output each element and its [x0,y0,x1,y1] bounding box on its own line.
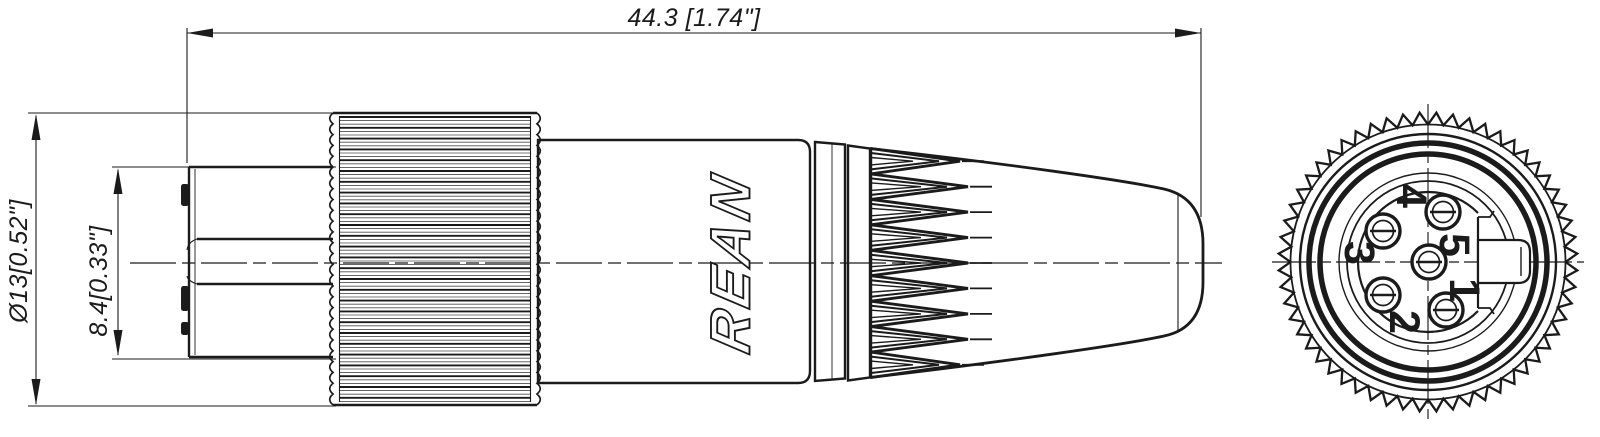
knurled-ring [330,113,541,405]
arrow-up-icon [32,114,41,140]
latch-tab [181,322,189,335]
front-shank [181,167,333,357]
drawing-canvas: 44.3 [1.74"] Ø13[0.52"] 8.4[0.33"] [0,0,1600,437]
keyway-groove [197,239,333,284]
brand-logo: REAN [700,165,762,358]
arrow-up-icon [114,168,123,194]
pin-label-1: 1 [1440,278,1488,302]
side-view: 44.3 [1.74"] Ø13[0.52"] 8.4[0.33"] [5,4,1222,406]
connector-technical-drawing: 44.3 [1.74"] Ø13[0.52"] 8.4[0.33"] [0,0,1600,437]
latch-tab [181,286,189,311]
pin-label-4: 4 [1387,184,1435,208]
latch-tab [181,184,189,206]
pin-label-2: 2 [1380,310,1428,334]
arrow-down-icon [32,379,41,405]
dim-body-diameter: Ø13[0.52"] [5,113,336,406]
end-view: 4 3 5 2 1 [1272,104,1584,421]
pin-label-3: 3 [1335,241,1383,265]
arrow-left-icon [187,29,213,38]
keyway-tab [1478,240,1530,283]
collar-rings [815,142,870,381]
dim-body-diameter-text: Ø13[0.52"] [5,199,33,324]
dim-front-diameter-text: 8.4[0.33"] [85,225,113,337]
pin-label-5: 5 [1430,233,1478,257]
dim-overall-length-text: 44.3 [1.74"] [627,4,761,32]
knurl-valley-lines [340,116,531,402]
arrow-right-icon [1175,29,1201,38]
arrow-down-icon [114,330,123,356]
knurl-ribs-texture [340,117,530,401]
main-body: REAN [538,140,810,383]
